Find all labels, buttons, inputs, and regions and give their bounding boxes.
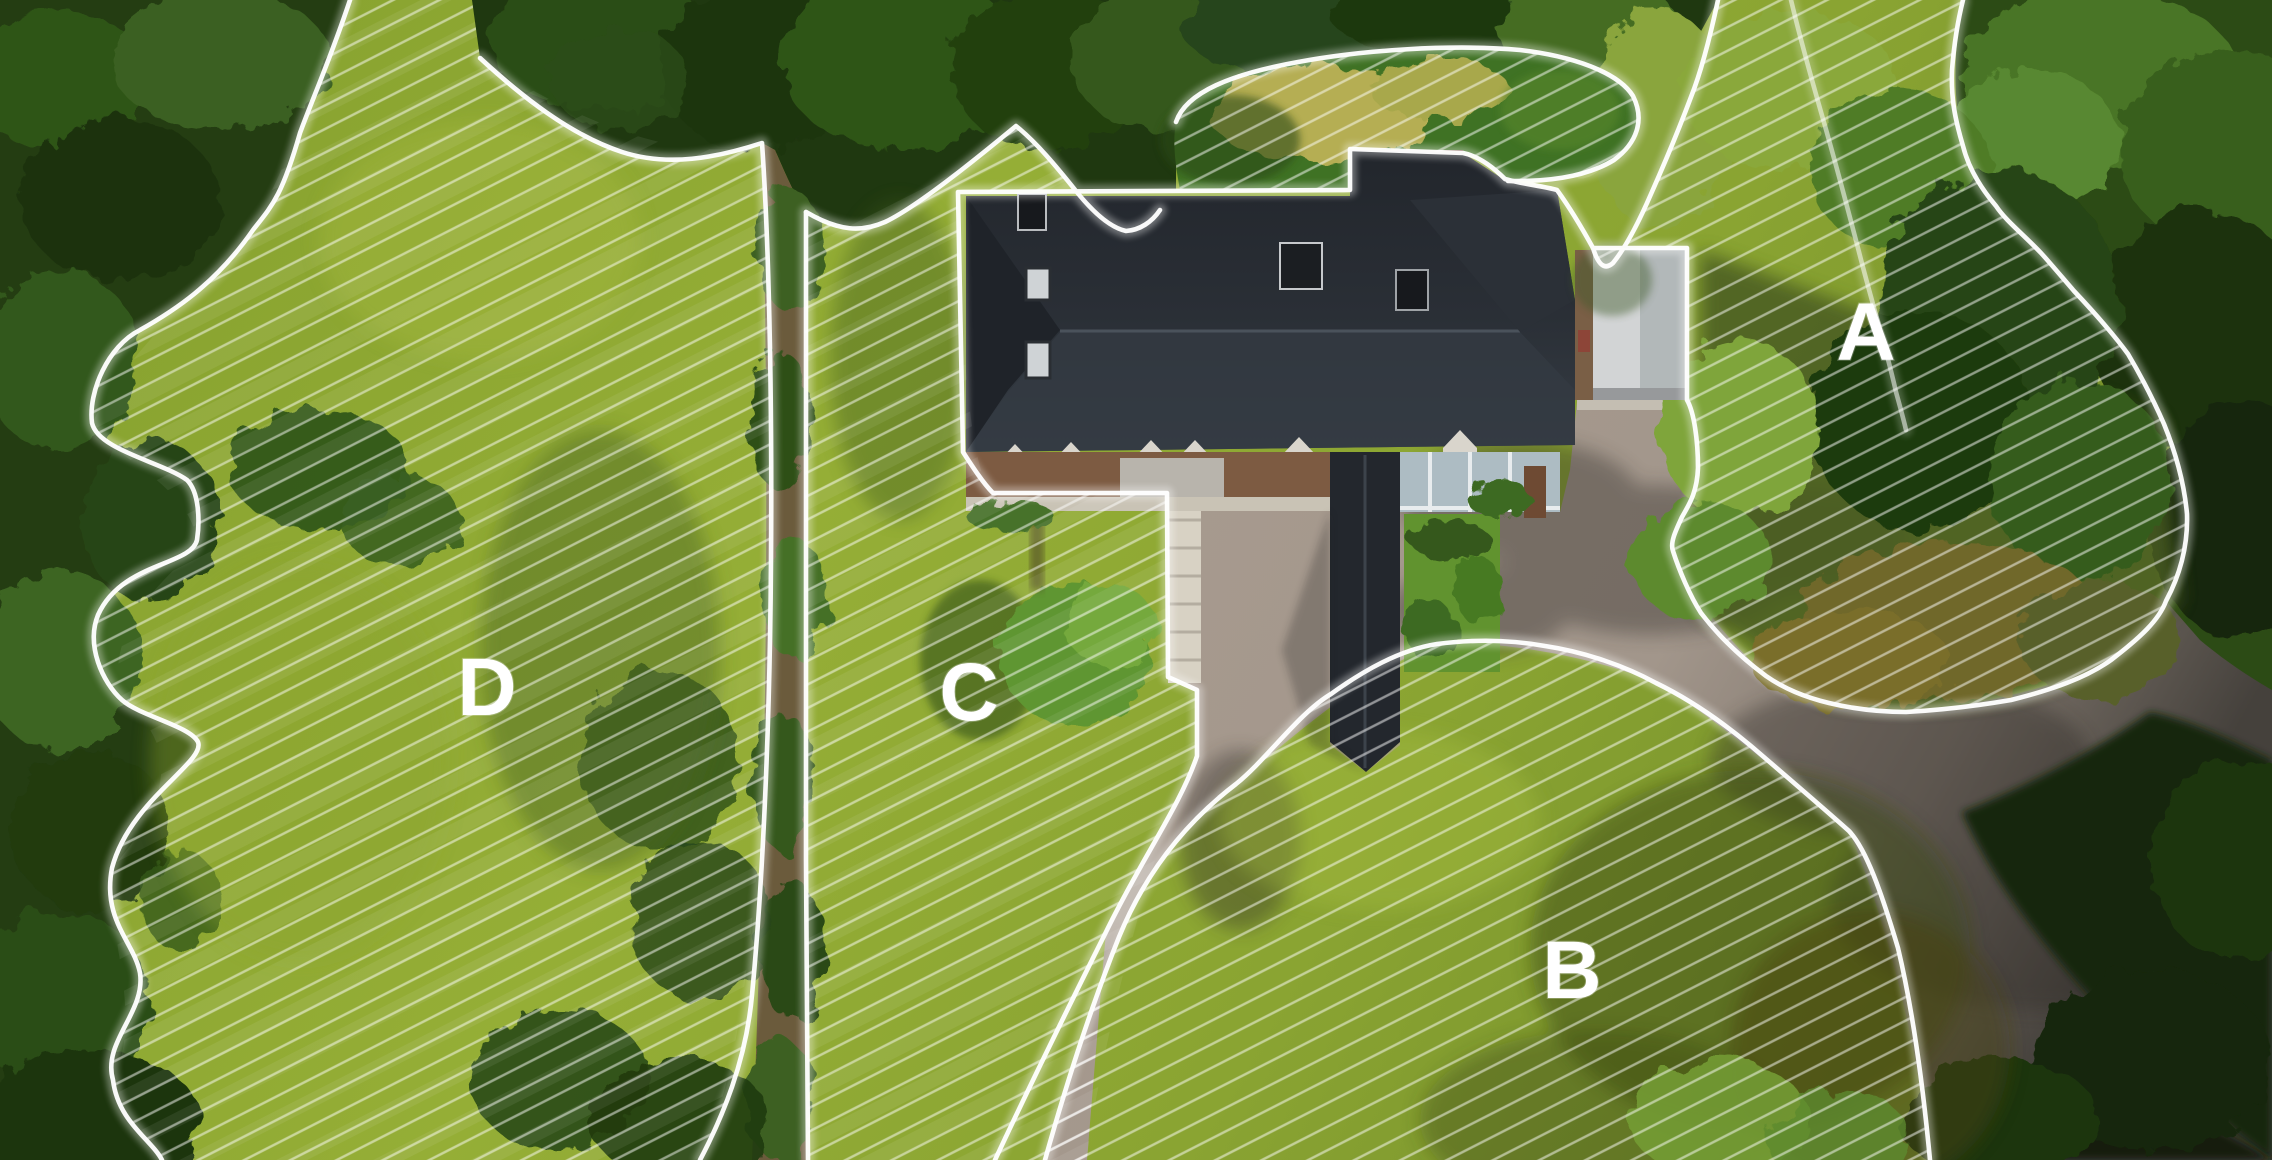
- zone-label-c: C: [939, 647, 998, 738]
- zone-c-left-outline: [805, 212, 808, 1160]
- zone-label-d: D: [457, 642, 516, 733]
- aerial-photo: A B C D: [0, 0, 2272, 1160]
- zone-label-b: B: [1542, 925, 1601, 1016]
- aerial-zone-map: A B C D: [0, 0, 2272, 1160]
- zone-label-a: A: [1836, 287, 1895, 378]
